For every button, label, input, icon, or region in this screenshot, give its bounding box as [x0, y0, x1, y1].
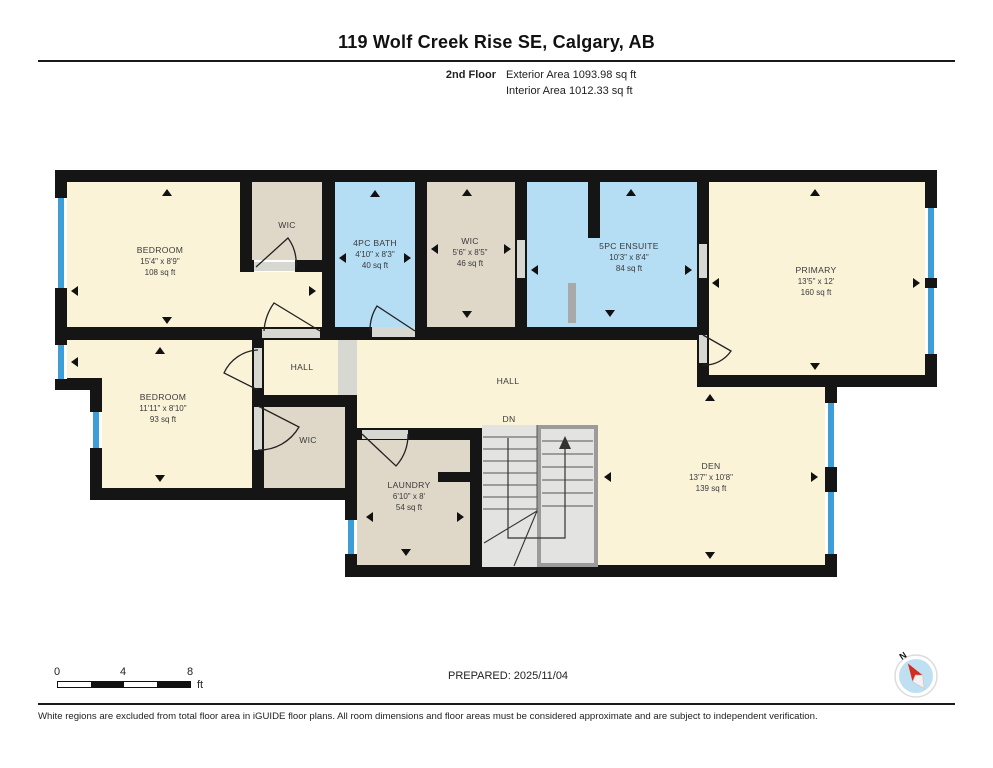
svg-text:11'11" x 8'10": 11'11" x 8'10": [139, 404, 186, 413]
svg-text:BEDROOM: BEDROOM: [137, 245, 184, 255]
room-hall-main: HALL: [497, 376, 520, 386]
svg-text:108 sq ft: 108 sq ft: [145, 268, 176, 277]
svg-text:10'3" x 8'4": 10'3" x 8'4": [609, 253, 649, 262]
svg-text:BEDROOM: BEDROOM: [140, 392, 187, 402]
svg-text:54 sq ft: 54 sq ft: [396, 503, 423, 512]
svg-text:13'5" x 12': 13'5" x 12': [798, 277, 835, 286]
stairs: [482, 425, 598, 567]
svg-text:160 sq ft: 160 sq ft: [801, 288, 832, 297]
room-wic-top: WIC: [278, 220, 296, 230]
scale-bar: 0 4 8 ft: [52, 666, 222, 696]
floor-plan-page: 119 Wolf Creek Rise SE, Calgary, AB 2nd …: [0, 0, 993, 768]
svg-text:DN: DN: [502, 414, 515, 424]
prepared-date: PREPARED: 2025/11/04: [448, 670, 568, 682]
window: [55, 345, 67, 379]
svg-text:5PC ENSUITE: 5PC ENSUITE: [599, 241, 659, 251]
svg-text:46 sq ft: 46 sq ft: [457, 259, 484, 268]
scale-unit: ft: [197, 679, 203, 691]
svg-text:HALL: HALL: [291, 362, 314, 372]
svg-text:PRIMARY: PRIMARY: [795, 265, 836, 275]
svg-text:WIC: WIC: [299, 435, 317, 445]
floor-plan-drawing: BEDROOM 15'4" x 8'9" 108 sq ft WIC 4PC B…: [0, 0, 993, 768]
svg-text:4'10" x 8'3": 4'10" x 8'3": [355, 250, 395, 259]
scale-tick-0: 0: [50, 666, 64, 678]
window: [345, 520, 357, 554]
stairs-dn-label: DN: [502, 414, 515, 424]
svg-text:40 sq ft: 40 sq ft: [362, 261, 389, 270]
svg-text:6'10" x 8': 6'10" x 8': [393, 492, 426, 501]
scale-tick-8: 8: [183, 666, 197, 678]
disclaimer-text: White regions are excluded from total fl…: [38, 711, 955, 722]
window: [925, 288, 937, 354]
svg-text:DEN: DEN: [701, 461, 720, 471]
svg-text:LAUNDRY: LAUNDRY: [387, 480, 430, 490]
window: [55, 198, 67, 288]
room-wic-bottom: WIC: [299, 435, 317, 445]
room-primary: PRIMARY 13'5" x 12' 160 sq ft: [795, 265, 836, 297]
window: [90, 412, 102, 448]
scale-tick-4: 4: [116, 666, 130, 678]
footer-divider: [38, 703, 955, 705]
svg-text:5'6" x 8'5": 5'6" x 8'5": [453, 248, 488, 257]
scale-bar-segments: [57, 681, 191, 688]
svg-text:4PC BATH: 4PC BATH: [353, 238, 397, 248]
svg-text:93 sq ft: 93 sq ft: [150, 415, 177, 424]
window: [825, 403, 837, 467]
svg-text:13'7" x 10'8": 13'7" x 10'8": [689, 473, 733, 482]
compass-icon: N: [886, 640, 946, 702]
svg-text:HALL: HALL: [497, 376, 520, 386]
svg-text:15'4" x 8'9": 15'4" x 8'9": [140, 257, 180, 266]
room-hall-small: HALL: [291, 362, 314, 372]
window: [825, 492, 837, 554]
svg-text:84 sq ft: 84 sq ft: [616, 264, 643, 273]
svg-text:WIC: WIC: [278, 220, 296, 230]
svg-text:139 sq ft: 139 sq ft: [696, 484, 727, 493]
svg-text:WIC: WIC: [461, 236, 479, 246]
window: [925, 208, 937, 278]
